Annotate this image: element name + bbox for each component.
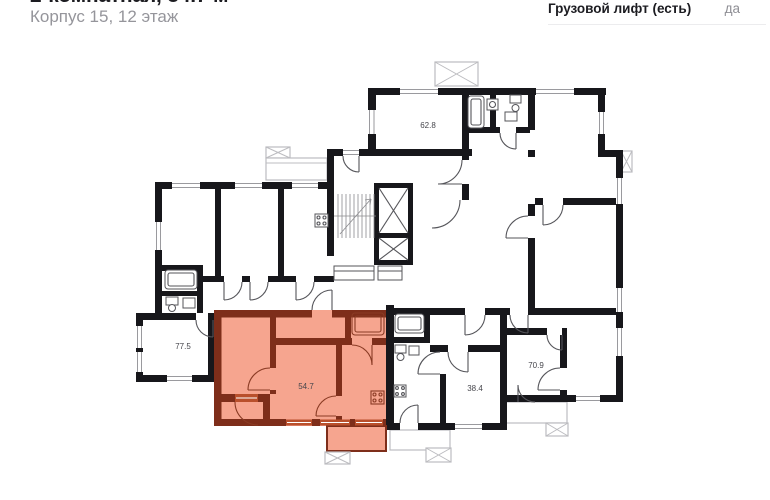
balcony-icon xyxy=(390,402,568,462)
area-label-54-7: 54.7 xyxy=(298,382,314,391)
area-label-70-9: 70.9 xyxy=(528,361,544,370)
highlighted-apartment[interactable] xyxy=(214,290,386,464)
area-label-77-5: 77.5 xyxy=(175,342,191,351)
highlighted-balcony xyxy=(325,452,350,464)
area-label-62-8: 62.8 xyxy=(420,121,436,130)
canopy-outline xyxy=(266,62,632,180)
lobby-fixtures xyxy=(334,266,402,280)
stairs-icon xyxy=(334,194,376,238)
floor-plan-page: 2-комнатная, 54.7 м² Корпус 15, 12 этаж … xyxy=(0,0,770,500)
elevator-shaft-icon xyxy=(379,188,408,260)
area-label-38-4: 38.4 xyxy=(467,384,483,393)
floor-plan: 62.8 77.5 54.7 38.4 70.9 xyxy=(0,0,770,500)
